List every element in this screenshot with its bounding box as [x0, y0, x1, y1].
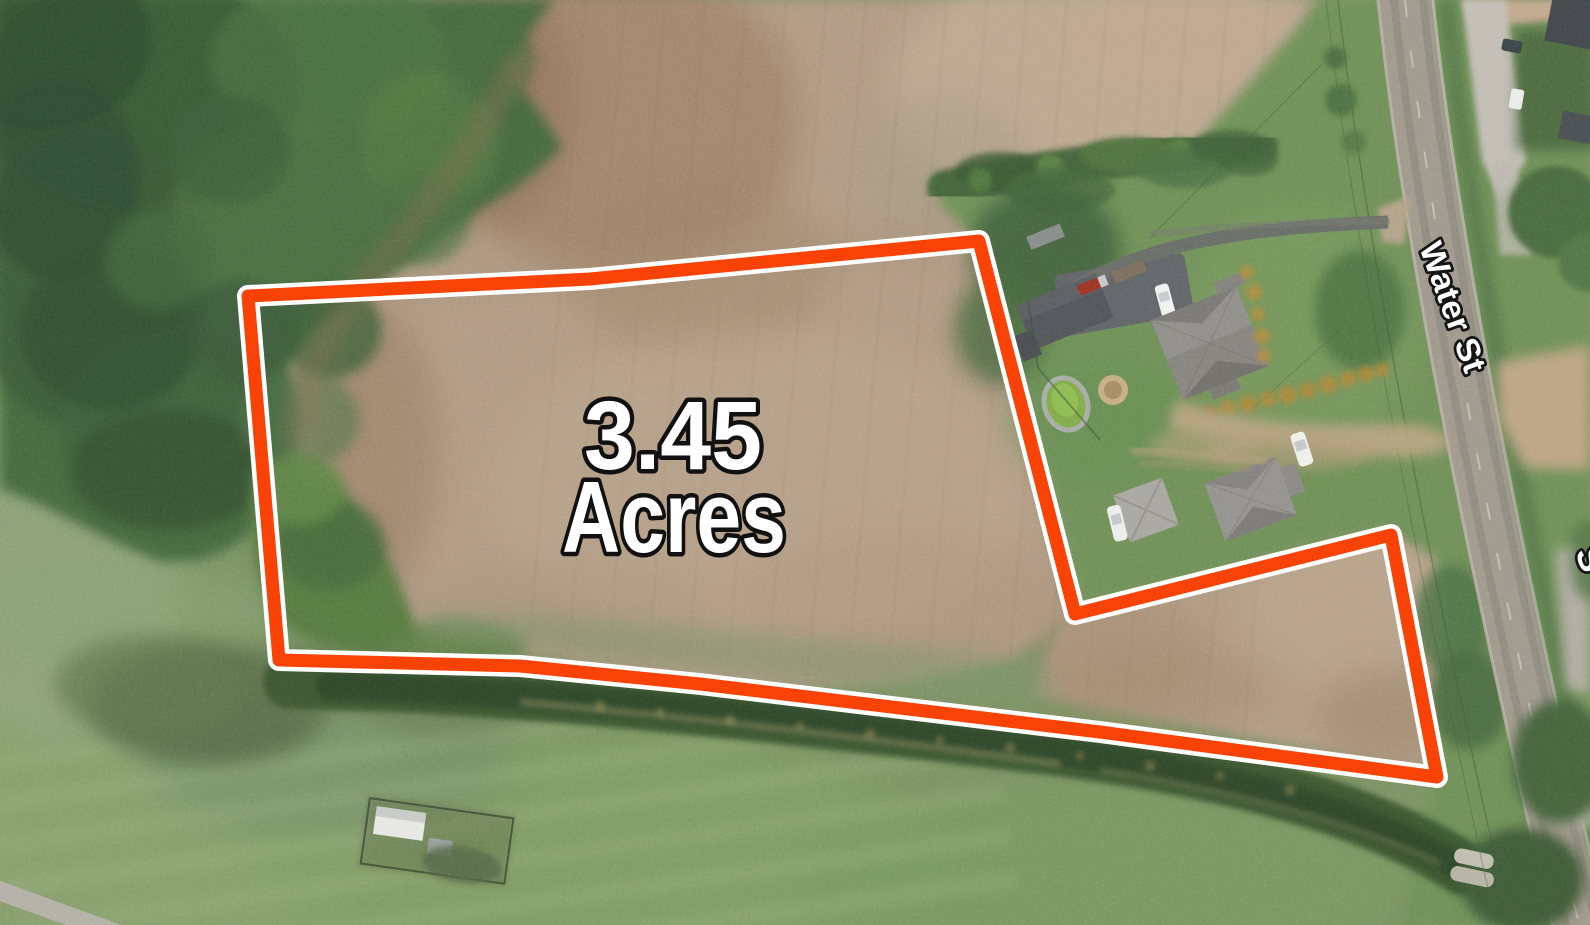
- svg-text:Acres: Acres: [562, 462, 786, 574]
